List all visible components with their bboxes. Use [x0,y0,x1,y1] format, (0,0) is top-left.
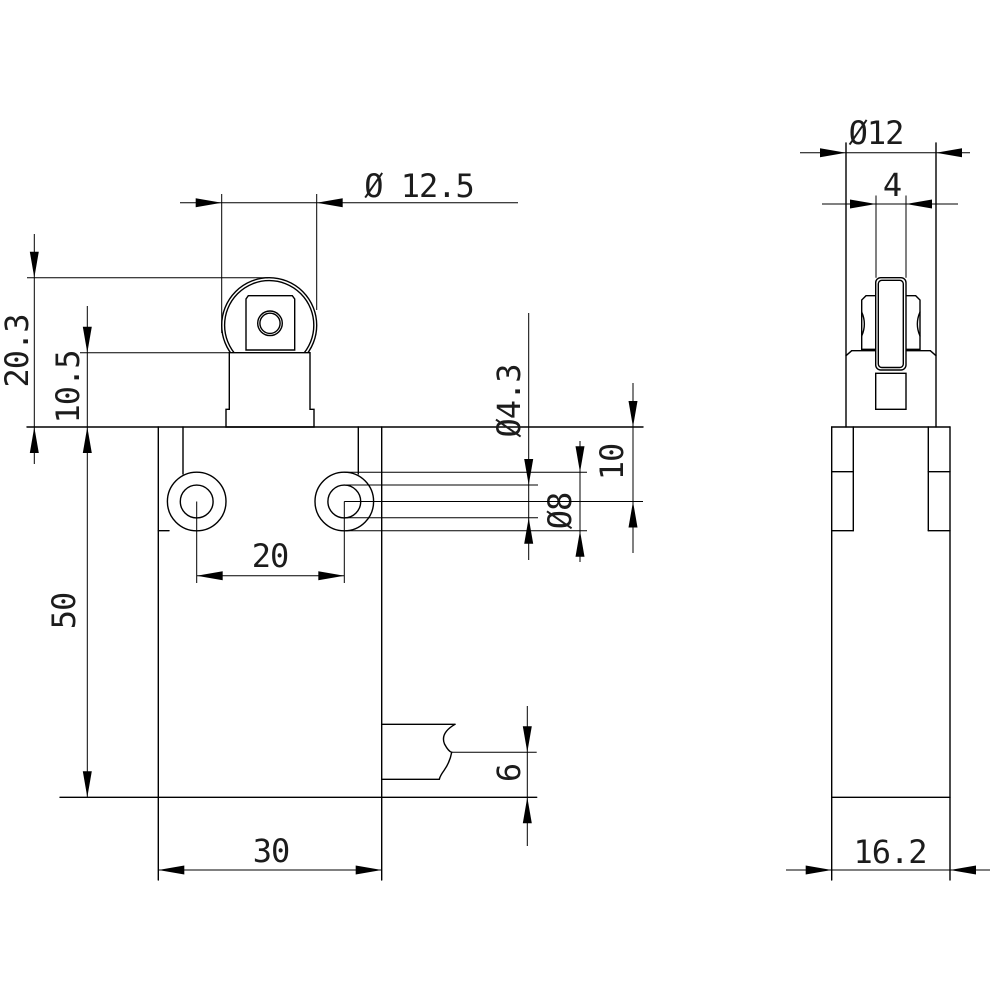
dim-body-height-label: 50 [45,593,83,630]
dim-hole-outer-diameter-label: Ø8 [541,493,579,530]
limit-switch-drawing: Ø 12.5 20.3 10.5 50 20 [0,0,1000,1000]
plunger-bushing [226,353,314,427]
dim-outlet-offset: 6 [452,706,537,846]
dim-outlet-offset-label: 6 [490,764,528,782]
technical-drawing-canvas: Ø 12.5 20.3 10.5 50 20 [0,0,1000,1000]
dim-body-height: 50 [45,593,92,798]
side-plunger-stem [876,373,906,409]
front-view [27,278,643,880]
roller-bracket [246,296,295,350]
side-roller [876,278,906,370]
dim-side-body-width: 16.2 [786,833,990,875]
dim-hole-inner-diameter: Ø4.3 [344,313,538,560]
dim-plunger-height-label: 10.5 [49,350,87,423]
dim-side-roller-diameter-label: Ø12 [849,114,904,152]
dim-roller-thickness-label: 4 [883,166,901,204]
dim-side-body-width-label: 16.2 [853,833,926,871]
side-view-dimensions: Ø12 4 16.2 [786,114,990,875]
dim-body-width-label: 30 [253,832,290,870]
dim-roller-top-height-label: 20.3 [0,314,36,387]
dim-roller-diameter-label: Ø 12.5 [364,167,474,205]
dim-body-width: 30 [158,832,381,875]
dim-hole-center-offset-label: 10 [593,444,631,481]
dim-hole-spacing-label: 20 [252,537,289,575]
dim-hole-spacing: 20 [197,502,345,584]
dim-roller-diameter: Ø 12.5 [180,167,518,333]
dim-roller-thickness: 4 [822,166,958,278]
dim-side-roller-diameter: Ø12 [800,114,970,157]
dim-plunger-height: 10.5 [49,306,229,797]
side-view [832,143,950,880]
dim-hole-inner-diameter-label: Ø4.3 [490,364,528,437]
